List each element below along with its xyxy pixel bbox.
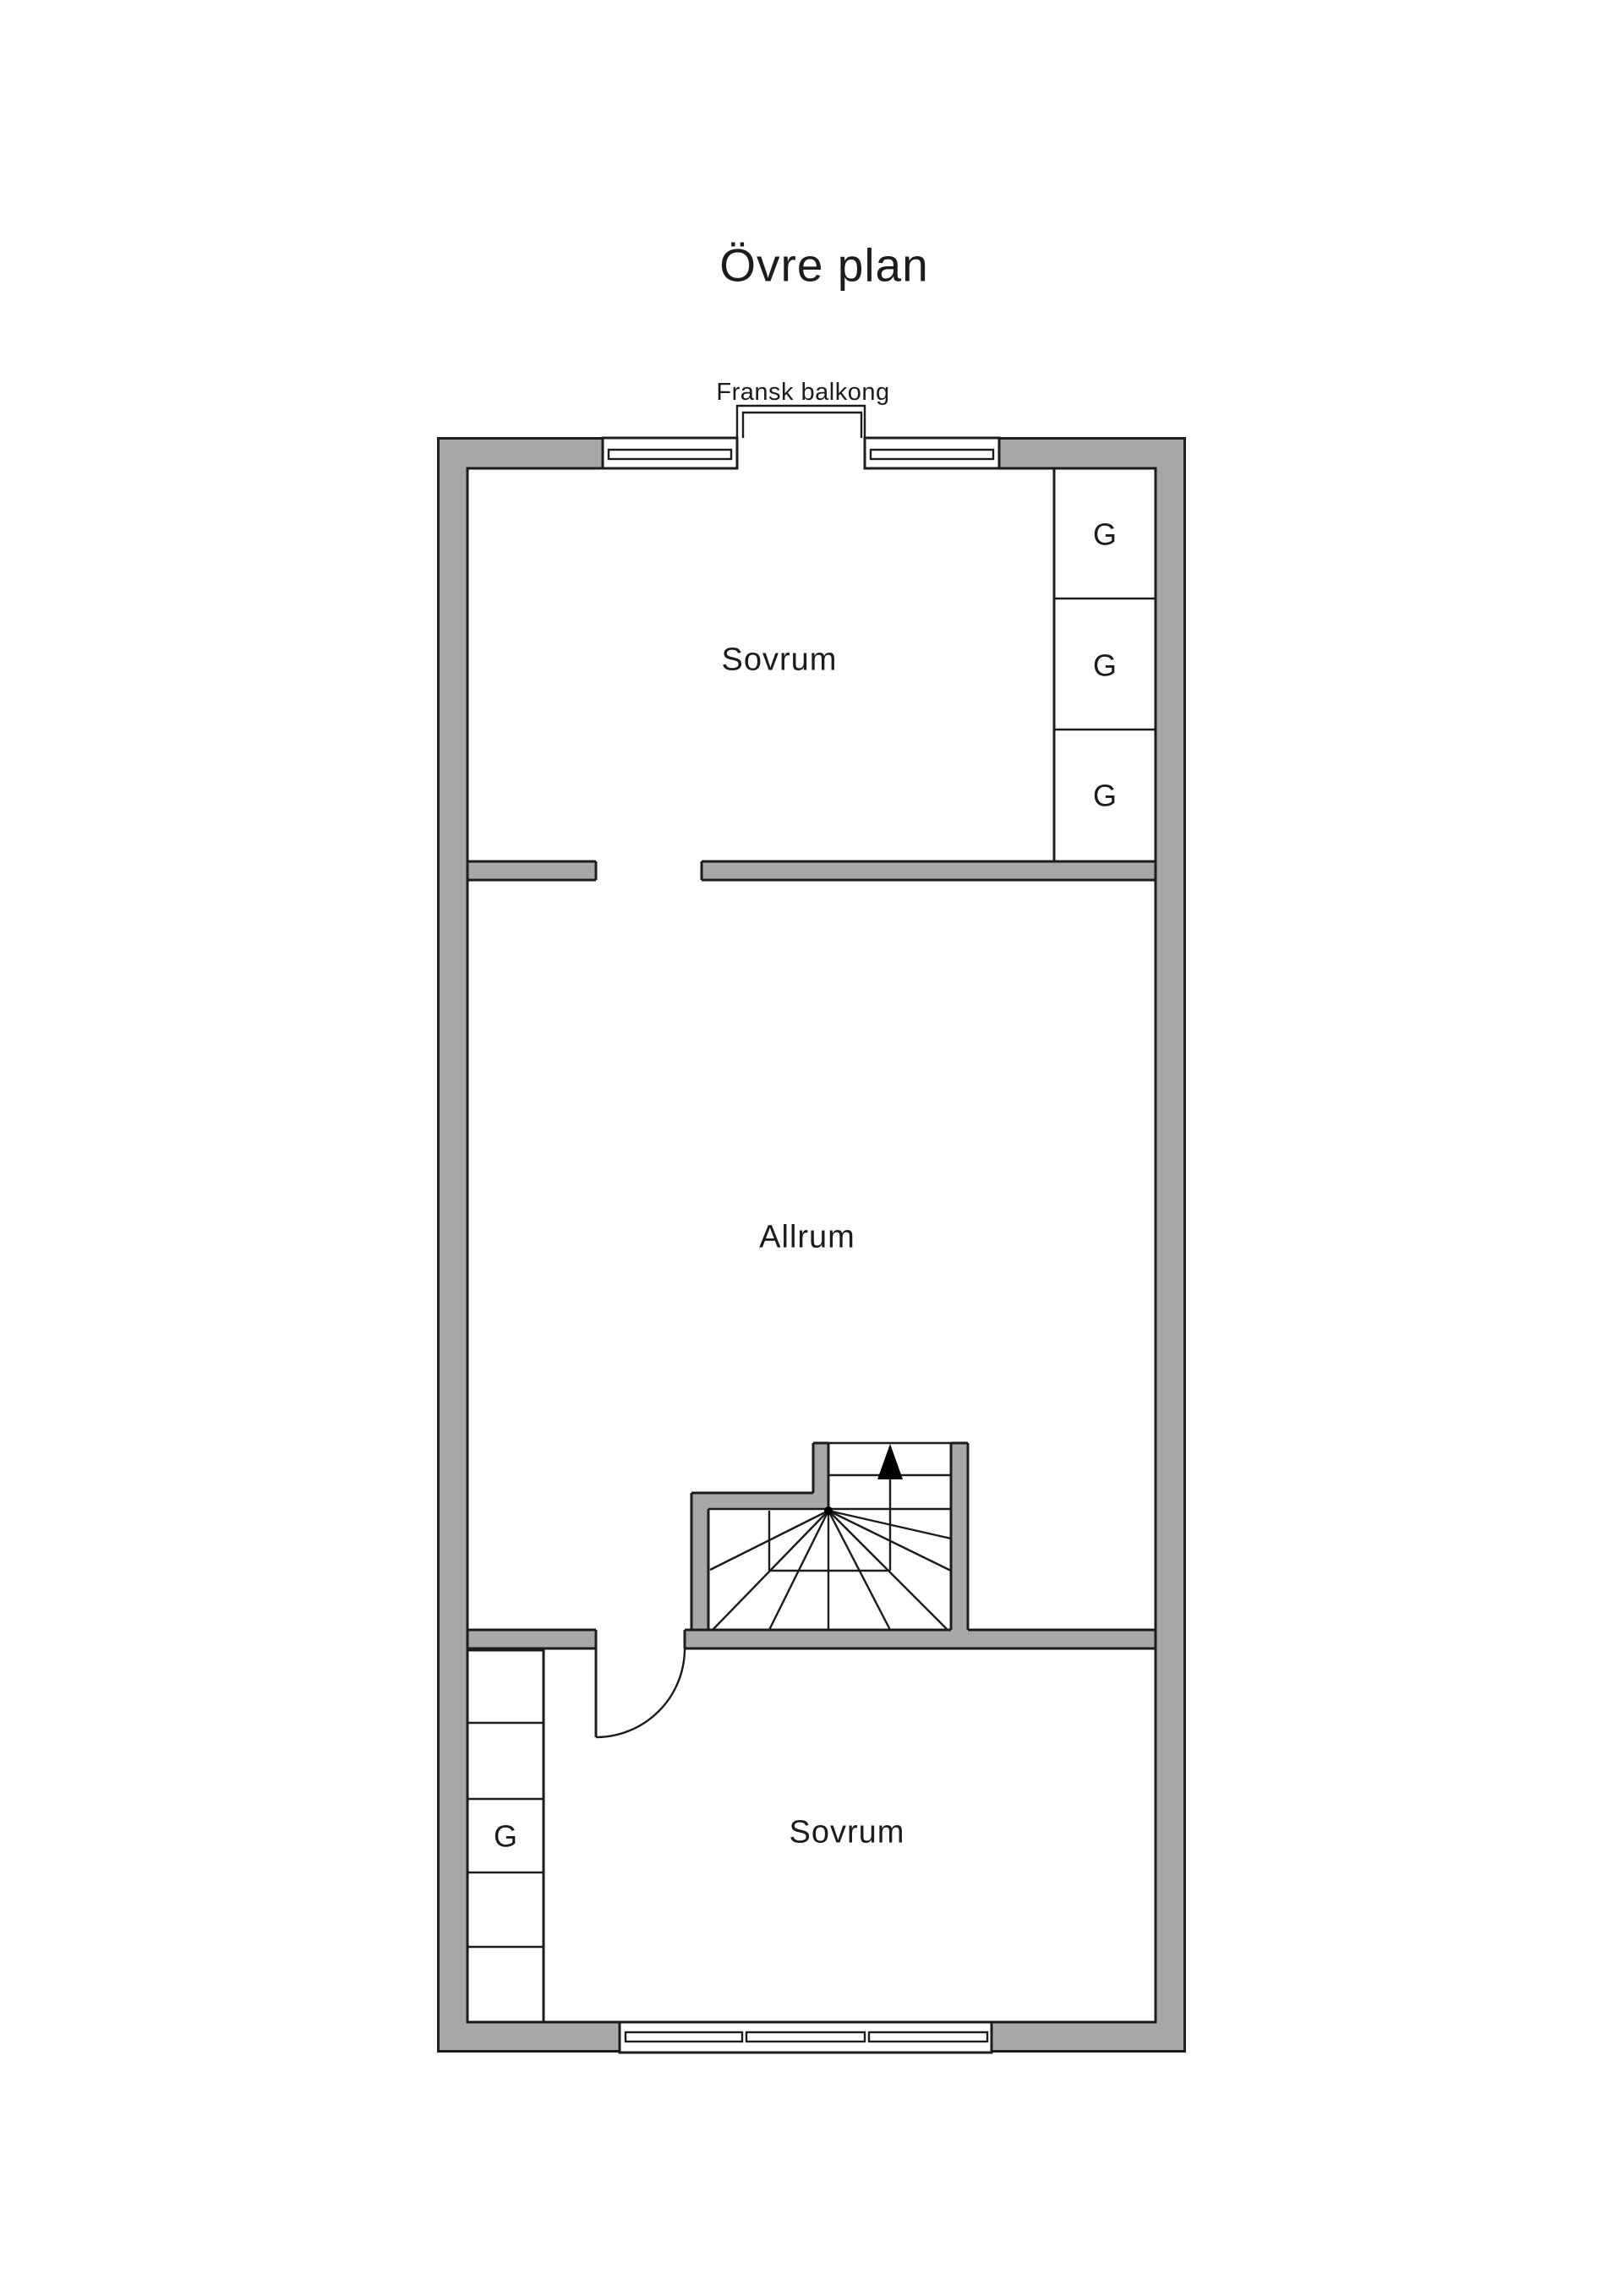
- wardrobe-label: G: [1093, 648, 1117, 683]
- balcony-railing-outer: [737, 406, 865, 438]
- window-frame: [620, 2022, 992, 2053]
- floor-plan-svg: G G G G: [0, 0, 1623, 2296]
- stair-wall-stub: [813, 1443, 828, 1509]
- wardrobe-bank-bottom-left: G: [467, 1650, 544, 2022]
- window-frame: [865, 438, 999, 468]
- stair-wall-right: [951, 1443, 968, 1630]
- wardrobe-label: G: [494, 1819, 517, 1854]
- wardrobe-label: G: [1093, 517, 1117, 552]
- floor-plan-page: G G G G: [0, 0, 1623, 2296]
- stair-fan-center-dot: [824, 1506, 833, 1515]
- door-bottom-bedroom: [596, 1648, 685, 1737]
- wardrobe-label: G: [1093, 779, 1117, 813]
- window-top-right: [865, 438, 999, 468]
- window-bottom: [620, 2022, 992, 2053]
- divider-wall-upper-left-stub: [467, 861, 596, 880]
- exterior-wall-left: [437, 437, 467, 2053]
- divider-wall-lower-left: [467, 1630, 596, 1648]
- balcony-railing: [737, 406, 865, 438]
- window-top-left: [603, 438, 737, 468]
- stair-wall-left: [691, 1493, 708, 1630]
- room-label-bedroom-bottom: Sovrum: [790, 1814, 905, 1850]
- stair-wall-horizontal: [691, 1493, 828, 1509]
- stair-up-arrow-icon: [877, 1444, 903, 1479]
- window-frame: [603, 438, 737, 468]
- door-swing-arc: [596, 1648, 685, 1737]
- room-label-bedroom-top: Sovrum: [722, 642, 838, 677]
- stair-walls-outline: [691, 1443, 828, 1630]
- balcony-label: Fransk balkong: [716, 379, 889, 406]
- divider-wall-lower-right: [685, 1630, 1156, 1648]
- divider-wall-upper-right: [702, 861, 1156, 880]
- wardrobe-bank-top-right: G G G: [1054, 468, 1156, 861]
- page-title: Övre plan: [719, 238, 928, 291]
- exterior-wall-right: [1156, 437, 1186, 2053]
- room-label-living-room: Allrum: [759, 1219, 855, 1255]
- balcony-railing-inner: [743, 413, 861, 438]
